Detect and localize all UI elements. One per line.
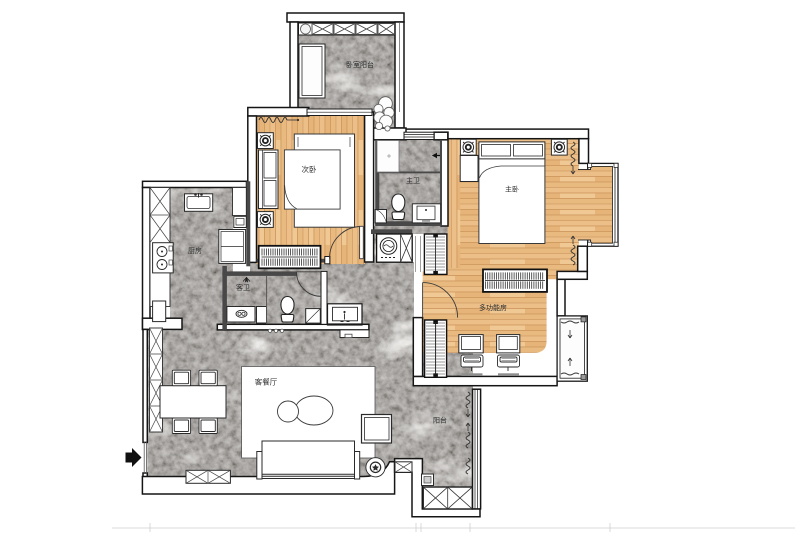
svg-text:客卫: 客卫 xyxy=(236,283,250,292)
svg-text:主卧: 主卧 xyxy=(505,185,519,194)
svg-text:卧室阳台: 卧室阳台 xyxy=(346,60,374,69)
svg-text:厨房: 厨房 xyxy=(188,246,202,255)
svg-text:客餐厅: 客餐厅 xyxy=(255,377,278,387)
svg-text:主卫: 主卫 xyxy=(406,176,420,185)
svg-text:多功能房: 多功能房 xyxy=(479,303,507,312)
svg-text:阳台: 阳台 xyxy=(433,416,447,425)
svg-text:次卧: 次卧 xyxy=(302,164,317,174)
